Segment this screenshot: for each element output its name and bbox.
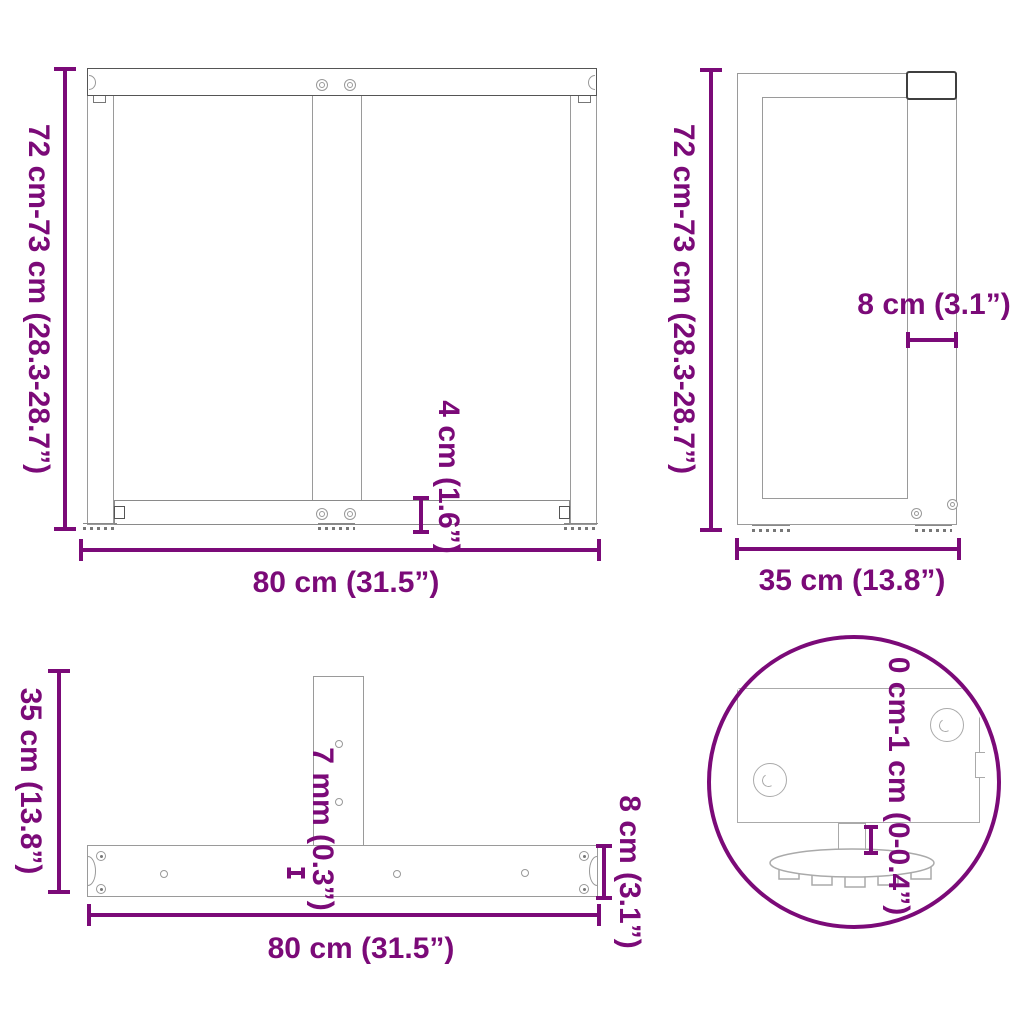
front-bottom-rail-left-clip bbox=[114, 506, 125, 519]
detail-adjust-marker bbox=[869, 826, 873, 854]
plan-bar-width-marker bbox=[602, 845, 606, 899]
front-rail-right-arc bbox=[588, 75, 595, 90]
front-rail-height-label: 4 cm (1.6”) bbox=[433, 400, 463, 553]
plan-plate-thickness-label: 7 mm (0.3”) bbox=[307, 747, 337, 910]
foot-pad bbox=[318, 523, 355, 530]
front-top-rail bbox=[87, 68, 597, 96]
plan-bar-width-label: 8 cm (3.1”) bbox=[614, 795, 644, 948]
side-depth-dimension-line bbox=[736, 547, 960, 551]
plan-bar-hole bbox=[160, 870, 168, 878]
screw-hole bbox=[344, 508, 356, 520]
front-view: 72 cm-73 cm (28.3-28.7”) 80 cm (31.5”) 4… bbox=[0, 0, 640, 620]
side-height-label: 72 cm-73 cm (28.3-28.7”) bbox=[668, 124, 698, 474]
side-depth-label: 35 cm (13.8”) bbox=[759, 566, 946, 596]
screw-hole bbox=[947, 499, 958, 510]
front-height-label: 72 cm-73 cm (28.3-28.7”) bbox=[23, 124, 53, 474]
plan-plate-thickness-marker bbox=[288, 871, 304, 875]
detail-clip-area bbox=[707, 635, 993, 921]
front-width-dimension-line bbox=[80, 548, 600, 552]
plan-bar-hole bbox=[521, 869, 529, 877]
plan-width-dimension-line bbox=[88, 913, 600, 917]
foot-pad bbox=[752, 525, 790, 532]
screw-hole bbox=[316, 508, 328, 520]
front-rail-height-marker bbox=[419, 497, 423, 533]
plan-bar-hole bbox=[393, 870, 401, 878]
foot-pad bbox=[564, 523, 598, 530]
side-column-width-label: 8 cm (3.1”) bbox=[857, 290, 1010, 320]
dimension-diagram: 72 cm-73 cm (28.3-28.7”) 80 cm (31.5”) 4… bbox=[0, 0, 1024, 1024]
front-bottom-rail-right-clip bbox=[559, 506, 570, 519]
plan-width-label: 80 cm (31.5”) bbox=[268, 934, 455, 964]
detail-view: 0 cm-1 cm (0-0.4”) bbox=[660, 620, 1024, 1024]
front-right-leg bbox=[570, 96, 597, 525]
detail-adjust-label: 0 cm-1 cm (0-0.4”) bbox=[883, 657, 913, 915]
front-width-label: 80 cm (31.5”) bbox=[253, 568, 440, 598]
screw-hole bbox=[579, 884, 589, 894]
front-center-post bbox=[312, 96, 362, 500]
front-bottom-rail bbox=[114, 500, 570, 525]
detail-plate-notch bbox=[975, 752, 985, 778]
plan-depth-dimension-line bbox=[57, 670, 61, 893]
plan-depth-label: 35 cm (13.8”) bbox=[15, 688, 45, 875]
screw-hole bbox=[579, 851, 589, 861]
side-view: 72 cm-73 cm (28.3-28.7”) 35 cm (13.8”) 8… bbox=[640, 0, 1024, 620]
foot-pad bbox=[83, 523, 117, 530]
front-right-leg-notch bbox=[578, 96, 591, 103]
adjuster-hole bbox=[753, 763, 787, 797]
foot-pad bbox=[915, 525, 952, 532]
side-height-dimension-line bbox=[709, 69, 713, 531]
front-left-leg bbox=[87, 96, 114, 525]
adjuster-hole bbox=[930, 708, 964, 742]
front-left-leg-notch bbox=[93, 96, 106, 103]
screw-hole bbox=[911, 508, 922, 519]
screw-hole bbox=[316, 79, 328, 91]
side-column-width-marker bbox=[907, 338, 957, 342]
front-height-dimension-line bbox=[63, 68, 67, 530]
screw-hole bbox=[344, 79, 356, 91]
side-mounting-block bbox=[906, 71, 957, 100]
screw-hole bbox=[96, 884, 106, 894]
plan-view: 7 mm (0.3”) 8 cm (3.1”) 35 cm (13.8”) 80… bbox=[0, 620, 660, 1024]
screw-hole bbox=[96, 851, 106, 861]
